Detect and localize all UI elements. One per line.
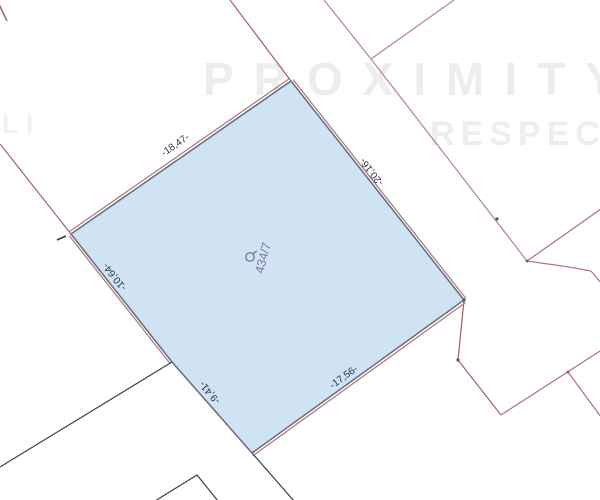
svg-text:LI: LI (2, 109, 41, 139)
svg-text:RESPECT: RESPECT (430, 115, 600, 153)
